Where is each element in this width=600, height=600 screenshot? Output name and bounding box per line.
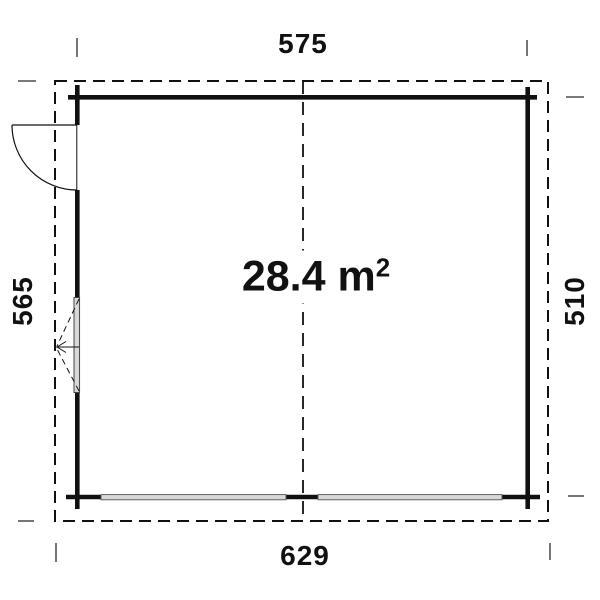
- garage-door-panel-right: [318, 495, 502, 500]
- door-symbol: [12, 125, 77, 190]
- area-superscript: 2: [376, 253, 390, 283]
- door-swing-arc: [12, 125, 77, 190]
- window-arrow-upper: [57, 342, 66, 348]
- dimension-bottom: 629: [280, 540, 330, 572]
- area-label: 28.4 m2: [232, 251, 400, 304]
- window-panel: [74, 298, 80, 393]
- garage-door-panel-left: [101, 495, 286, 500]
- dimension-right: 510: [559, 276, 591, 326]
- area-value: 28.4 m: [242, 253, 376, 301]
- window-symbol: [56, 298, 80, 393]
- dimension-top: 575: [278, 28, 328, 60]
- floor-plan: 575 629 565 510 28.4 m2: [0, 0, 600, 600]
- dimension-left: 565: [7, 276, 39, 326]
